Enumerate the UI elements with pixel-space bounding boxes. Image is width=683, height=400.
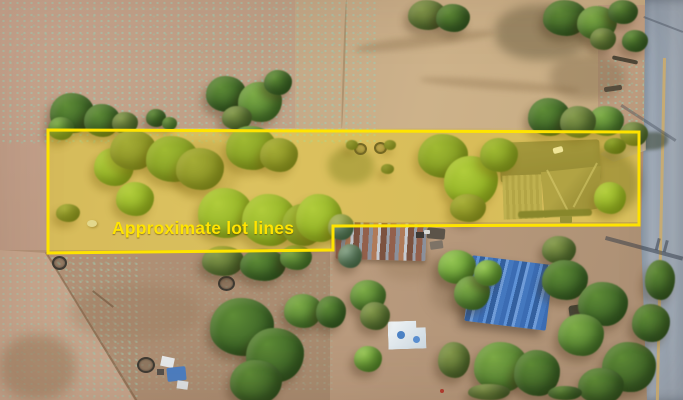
tree-canopy <box>622 30 648 52</box>
tree-canopy <box>48 117 74 140</box>
conifer-tree <box>338 244 362 268</box>
tree-canopy <box>450 194 486 222</box>
tree-canopy <box>558 314 604 356</box>
shrub <box>384 140 396 150</box>
yard-box <box>560 216 572 223</box>
shrub <box>56 204 80 222</box>
tire <box>137 357 155 373</box>
tarp-debris <box>176 380 188 389</box>
tree-canopy <box>560 106 596 138</box>
tree-canopy <box>645 260 675 300</box>
tree-canopy <box>548 386 582 400</box>
tree-canopy <box>578 368 624 400</box>
red-object <box>440 389 444 393</box>
dark-marsh-patch <box>328 148 374 184</box>
tire <box>218 276 235 291</box>
bush <box>354 346 382 372</box>
tree-canopy <box>608 0 638 24</box>
road-worn-band <box>669 0 677 400</box>
tree-canopy <box>280 245 312 270</box>
shrub <box>346 140 358 150</box>
tree-canopy <box>260 138 298 172</box>
tree-canopy <box>240 249 286 281</box>
tree-canopy <box>176 148 224 190</box>
aerial-photo: Approximate lot lines <box>0 0 683 400</box>
junk-pile <box>416 232 424 238</box>
junk-pile <box>157 369 164 375</box>
ground-shadow <box>550 55 625 100</box>
ground-mottle <box>70 285 200 340</box>
blue-tarp <box>166 366 186 382</box>
tree-canopy <box>590 28 616 50</box>
conifer-tree <box>328 214 354 240</box>
tree-canopy <box>604 138 626 154</box>
tree-canopy <box>480 138 518 172</box>
tree-canopy <box>632 304 670 342</box>
white-rock <box>87 220 97 227</box>
blue-barrel <box>413 336 420 343</box>
tree-canopy <box>162 117 177 130</box>
tree-canopy <box>436 4 470 32</box>
tree-canopy <box>202 246 244 276</box>
tree-canopy <box>438 342 470 378</box>
tree-canopy <box>360 302 390 330</box>
tire <box>52 256 67 270</box>
tree-canopy <box>468 384 510 400</box>
tree-canopy <box>116 182 154 216</box>
tree-canopy <box>264 70 292 95</box>
shrub <box>381 164 394 174</box>
white-table <box>424 230 430 234</box>
bush <box>594 182 626 214</box>
dark-corner <box>0 335 75 400</box>
blue-barrel <box>397 331 405 339</box>
lot-lines-label: Approximate lot lines <box>112 218 294 239</box>
tree-canopy <box>474 260 502 286</box>
tree-canopy <box>316 296 346 328</box>
tree-canopy <box>230 360 282 400</box>
